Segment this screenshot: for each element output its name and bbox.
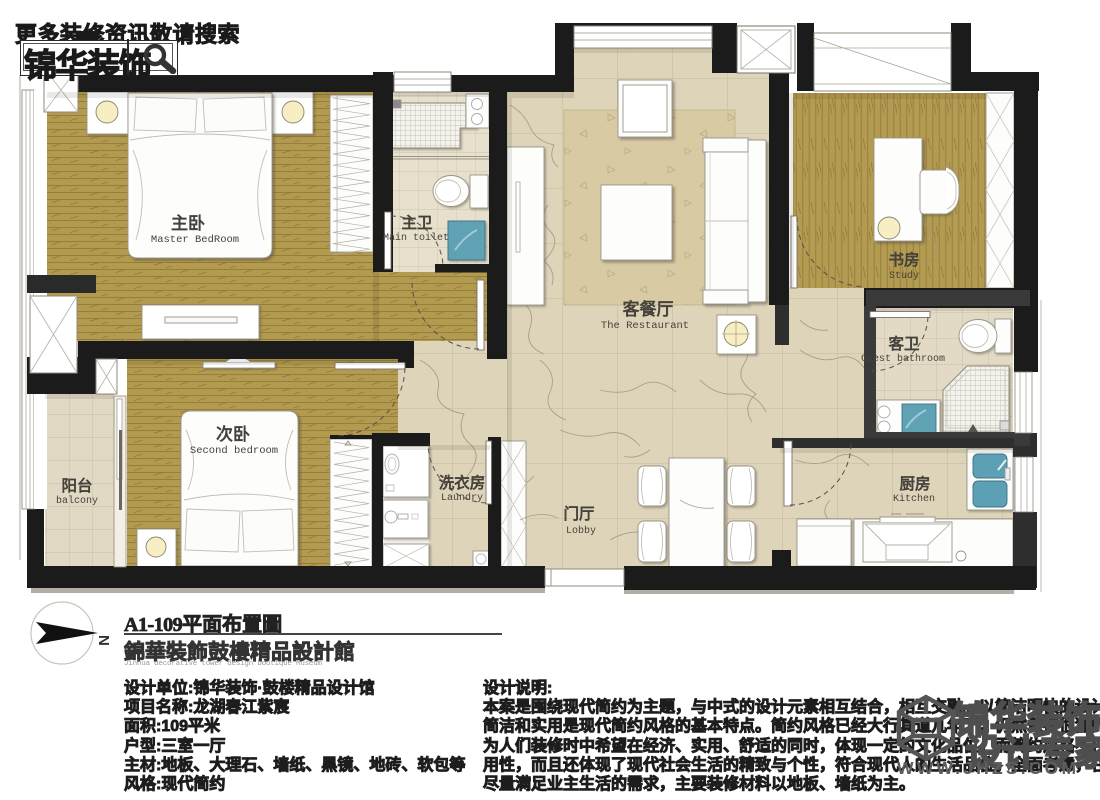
svg-text:主卧: 主卧 bbox=[171, 214, 205, 233]
svg-text:阳台: 阳台 bbox=[61, 477, 92, 495]
svg-text:厨房: 厨房 bbox=[899, 475, 930, 493]
svg-text:次卧: 次卧 bbox=[216, 425, 250, 444]
svg-text:客餐厅: 客餐厅 bbox=[623, 300, 674, 319]
svg-text:书房: 书房 bbox=[888, 251, 919, 269]
svg-text:洗衣房: 洗衣房 bbox=[439, 474, 486, 492]
svg-text:Kitchen: Kitchen bbox=[893, 493, 935, 505]
svg-text:The Restaurant: The Restaurant bbox=[601, 320, 689, 332]
svg-text:门厅: 门厅 bbox=[563, 505, 594, 523]
svg-text:Study: Study bbox=[889, 270, 919, 282]
svg-text:Lobby: Lobby bbox=[566, 525, 596, 537]
svg-text:N: N bbox=[95, 635, 112, 646]
svg-text:Master BedRoom: Master BedRoom bbox=[151, 234, 239, 246]
svg-text:Guest bathroom: Guest bathroom bbox=[861, 353, 945, 365]
svg-text:balcony: balcony bbox=[56, 495, 98, 507]
svg-text:Second bedroom: Second bedroom bbox=[190, 445, 278, 457]
svg-text:Main toilet: Main toilet bbox=[383, 232, 449, 244]
svg-text:Laundry: Laundry bbox=[441, 492, 483, 504]
svg-text:主卫: 主卫 bbox=[401, 214, 432, 232]
svg-text:客卫: 客卫 bbox=[888, 335, 919, 353]
